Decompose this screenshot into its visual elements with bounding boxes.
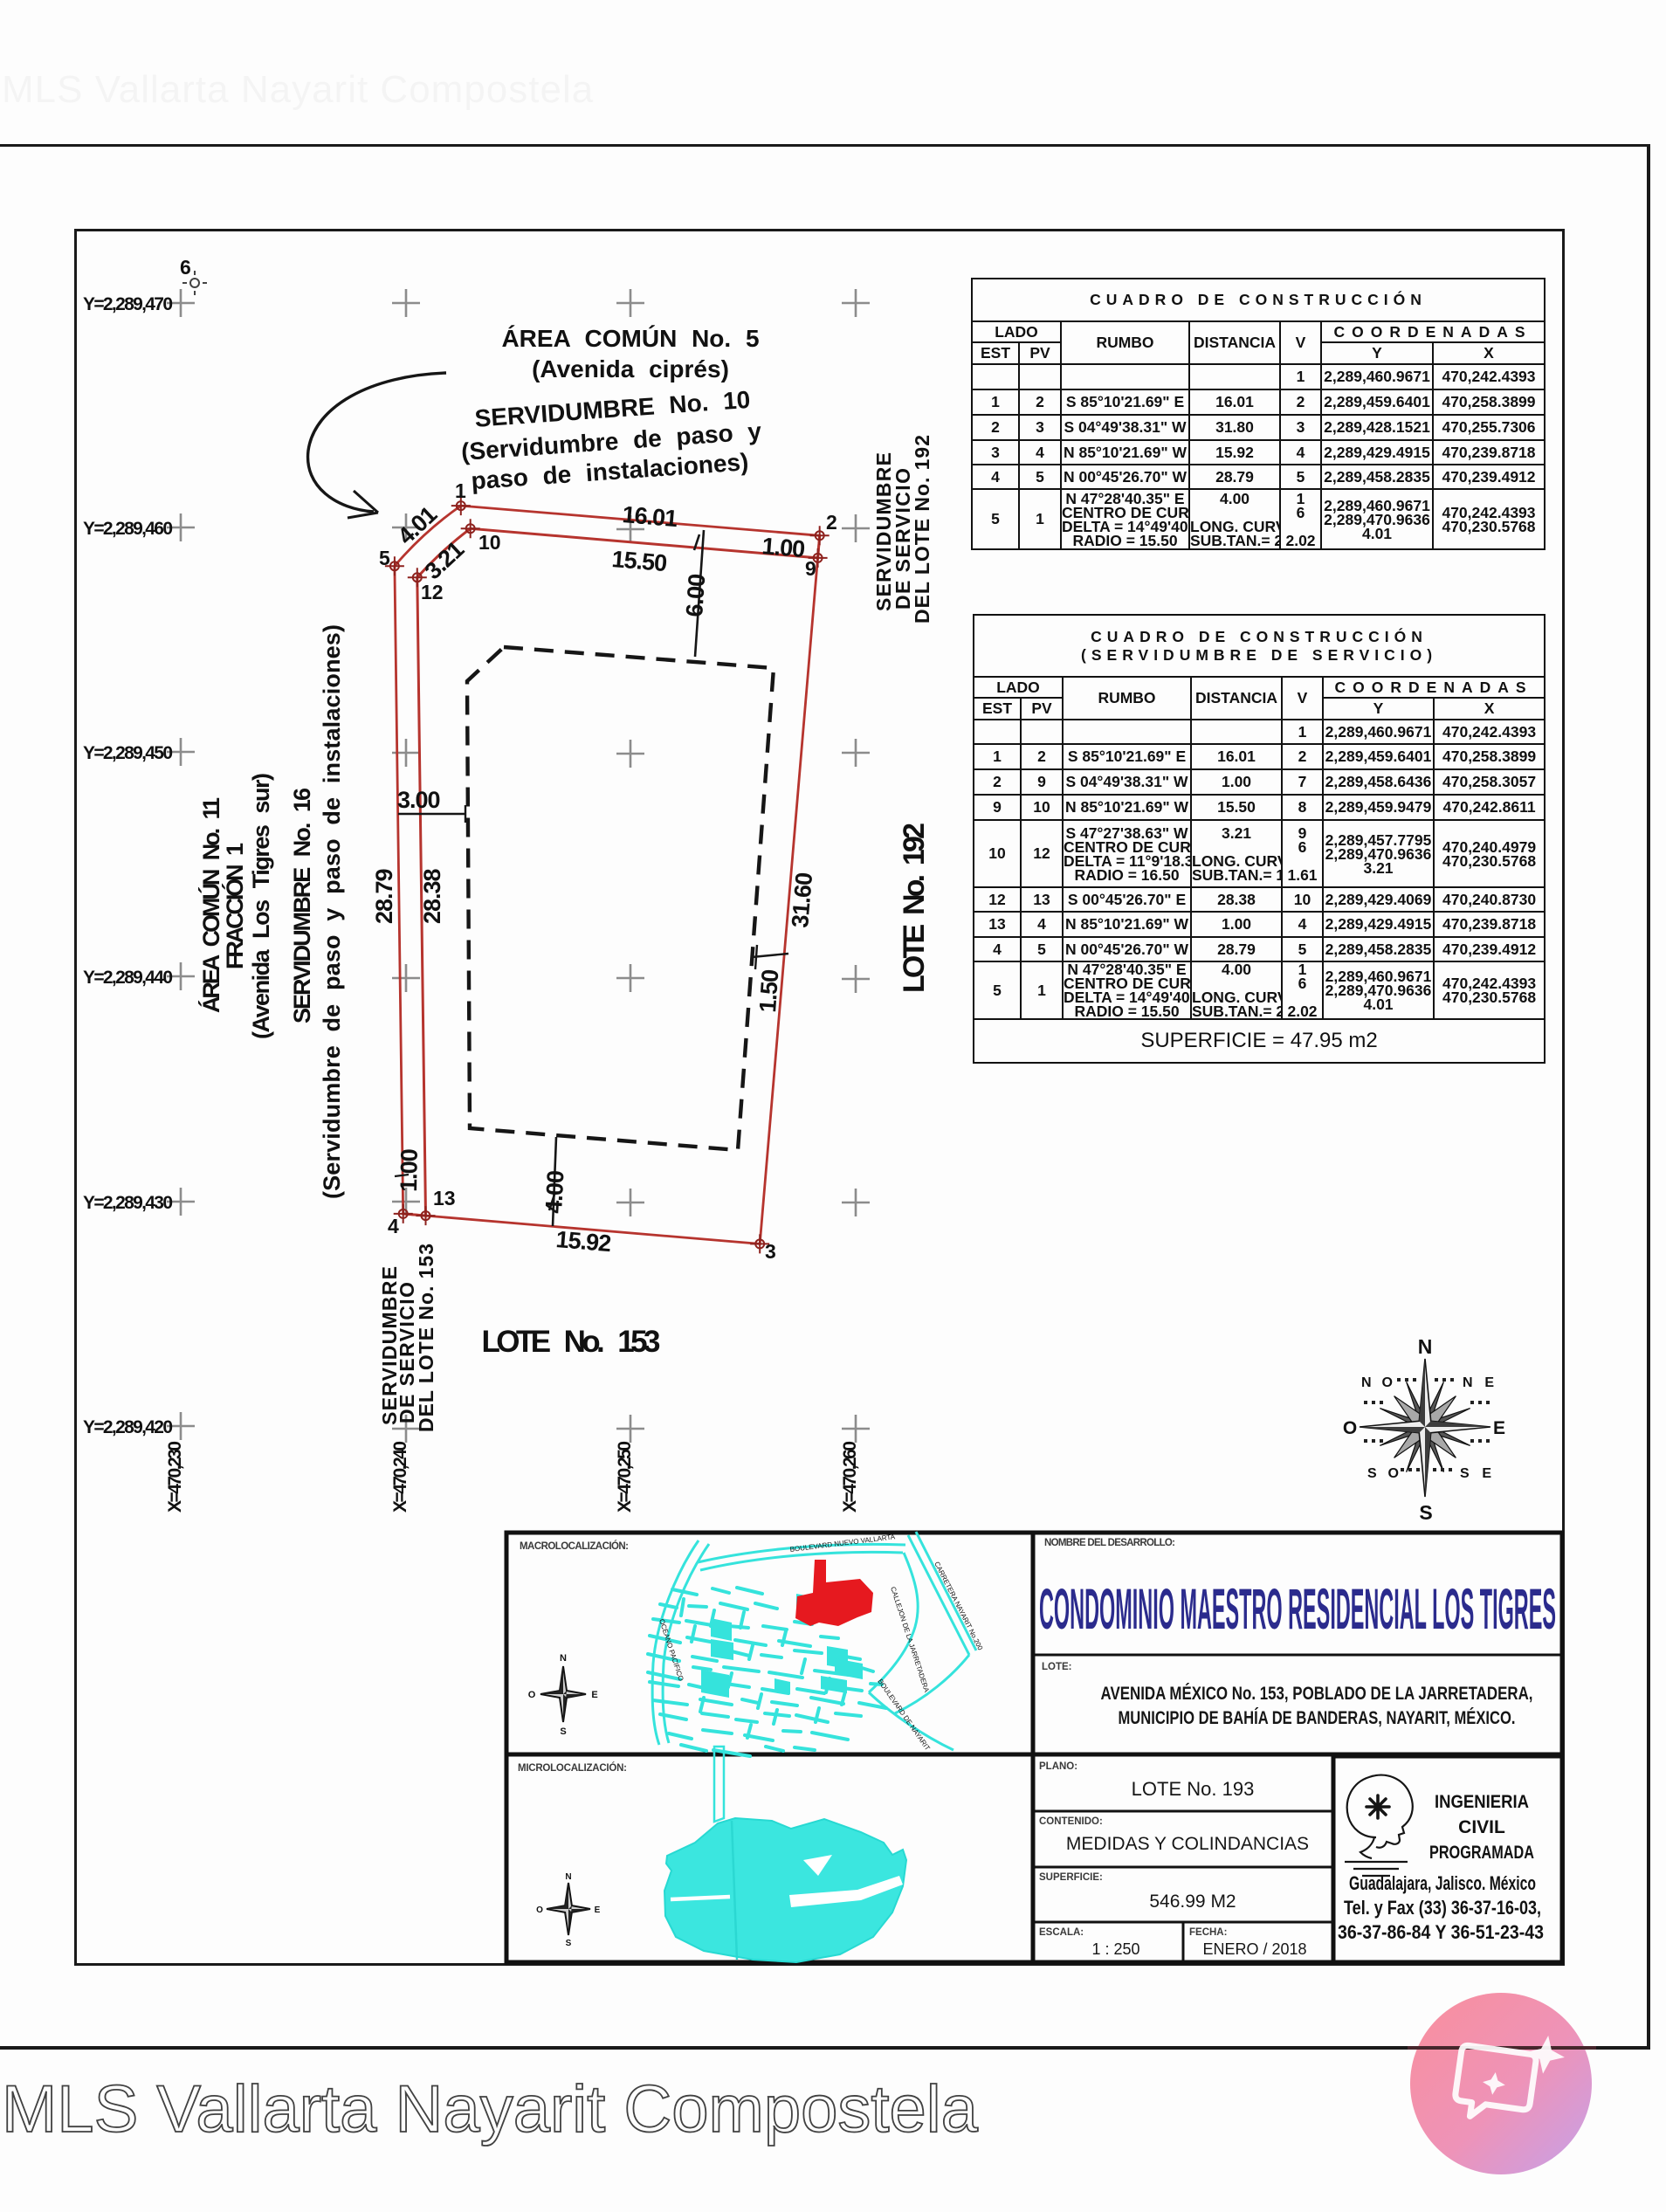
svg-text:PLANO:: PLANO: xyxy=(1039,1761,1077,1772)
svg-text:N: N xyxy=(560,1653,567,1664)
svg-text:MUNICIPIO DE BAHÍA DE BANDERAS: MUNICIPIO DE BAHÍA DE BANDERAS, NAYARIT,… xyxy=(1119,1708,1516,1728)
svg-text:S: S xyxy=(566,1939,572,1948)
svg-text:MICROLOCALIZACIÓN:: MICROLOCALIZACIÓN: xyxy=(518,1762,627,1774)
svg-text:LOTE No. 193: LOTE No. 193 xyxy=(1132,1778,1255,1800)
svg-text:CONDOMINIO MAESTRO RESIDENCIAL: CONDOMINIO MAESTRO RESIDENCIAL LOS TIGRE… xyxy=(1039,1576,1556,1641)
svg-text:SUPERFICIE:: SUPERFICIE: xyxy=(1039,1872,1103,1883)
svg-text:LOTE:: LOTE: xyxy=(1042,1662,1072,1672)
svg-text:CARRETERA NAYARIT No.200: CARRETERA NAYARIT No.200 xyxy=(933,1561,984,1652)
svg-text:Guadalajara, Jalisco. México: Guadalajara, Jalisco. México xyxy=(1349,1872,1536,1894)
svg-text:INGENIERIA: INGENIERIA xyxy=(1435,1792,1529,1812)
svg-text:N: N xyxy=(565,1872,571,1882)
svg-text:O: O xyxy=(536,1905,543,1915)
svg-text:MEDIDAS Y COLINDANCIAS: MEDIDAS Y COLINDANCIAS xyxy=(1066,1834,1309,1854)
svg-text:E: E xyxy=(591,1690,597,1700)
svg-text:NOMBRE DEL DESARROLLO:: NOMBRE DEL DESARROLLO: xyxy=(1044,1538,1175,1548)
svg-text:36-37-86-84 Y 36-51-23-43: 36-37-86-84 Y 36-51-23-43 xyxy=(1338,1921,1544,1943)
svg-text:CONTENIDO:: CONTENIDO: xyxy=(1039,1816,1103,1827)
svg-text:Tel. y Fax (33) 36-37-16-03,: Tel. y Fax (33) 36-37-16-03, xyxy=(1344,1897,1541,1919)
svg-text:CALLEJON DE LA JARRETADERA: CALLEJON DE LA JARRETADERA xyxy=(889,1586,931,1694)
svg-text:ENERO / 2018: ENERO / 2018 xyxy=(1202,1940,1306,1958)
svg-text:E: E xyxy=(595,1905,601,1915)
svg-text:FECHA:: FECHA: xyxy=(1189,1927,1227,1938)
svg-text:546.99 M2: 546.99 M2 xyxy=(1149,1892,1236,1912)
svg-text:O: O xyxy=(528,1690,536,1700)
svg-text:MACROLOCALIZACIÓN:: MACROLOCALIZACIÓN: xyxy=(520,1540,629,1552)
svg-text:PROGRAMADA: PROGRAMADA xyxy=(1429,1843,1534,1863)
svg-text:CIVIL: CIVIL xyxy=(1458,1817,1505,1837)
svg-text:S: S xyxy=(560,1726,566,1737)
svg-text:1 : 250: 1 : 250 xyxy=(1091,1940,1139,1958)
svg-text:AVENIDA MÉXICO No. 153, POBLAD: AVENIDA MÉXICO No. 153, POBLADO DE LA JA… xyxy=(1101,1684,1533,1704)
svg-text:ESCALA:: ESCALA: xyxy=(1039,1927,1084,1938)
